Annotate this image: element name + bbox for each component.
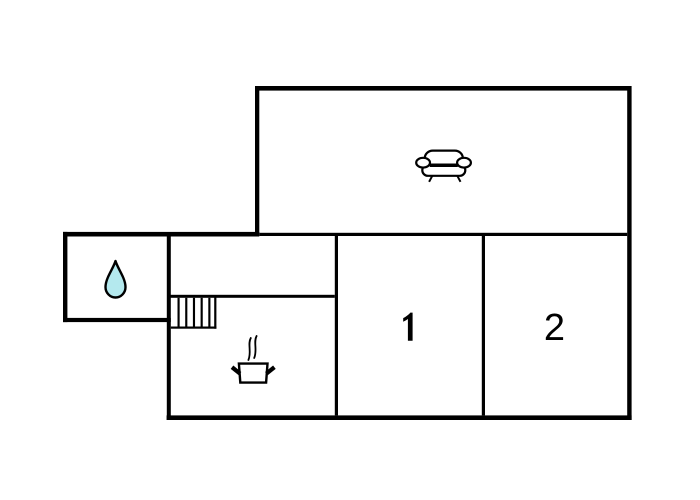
- svg-text:2: 2: [544, 307, 565, 349]
